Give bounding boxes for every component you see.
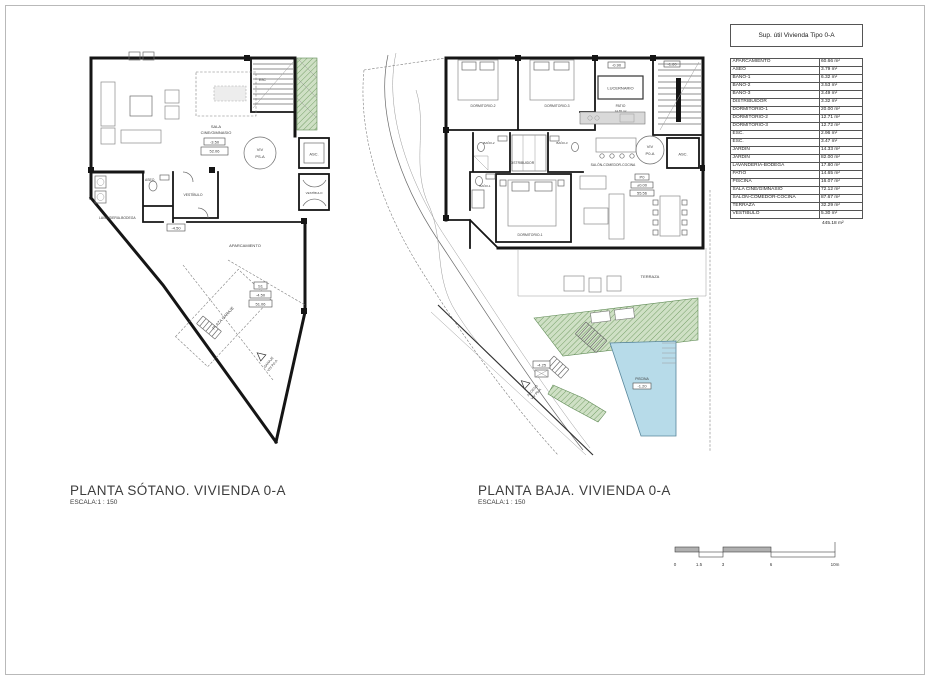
room-area: 16.07 m² [819, 179, 863, 186]
table-row: DORMITORIO-312.72 m² [730, 123, 863, 131]
room-label: PATIO [616, 104, 626, 108]
skylight-label: LUCERNARIO [607, 86, 633, 91]
bedroom-3: DORMITORIO-3 [530, 60, 574, 108]
sotano-walls [88, 52, 307, 442]
table-row: ASEO3.79 m² [730, 67, 863, 75]
scale-tick: 0 [674, 562, 677, 567]
table-row: BAÑO-33.49 m² [730, 91, 863, 99]
level-tag: -4.50 [256, 292, 266, 297]
scale-tick: 10m [831, 562, 840, 567]
level-tag: -4.25 [537, 362, 547, 367]
room-name: DORMITORIO-2 [731, 115, 819, 122]
baja-elevator: ASC. [667, 138, 699, 168]
bathroom-2: BAÑO-2 [474, 136, 507, 170]
room-name: ESC. [731, 139, 819, 146]
level-tag: -0.90 [612, 63, 622, 68]
room-label: SALA [211, 124, 222, 129]
bathroom-3: BAÑO-3 [550, 136, 579, 152]
room-name: PATIO [731, 171, 819, 178]
level-tag: -3.50 [210, 139, 220, 144]
table-row: DORMITORIO-120.00 m² [730, 107, 863, 115]
baja-title: PLANTA BAJA. VIVIENDA 0-A [478, 483, 671, 498]
area-total: 445.18 m² [730, 221, 863, 226]
table-row: DORMITORIO-212.71 m² [730, 115, 863, 123]
scale-bar-graphic [675, 542, 835, 557]
room-name: ASEO [731, 67, 819, 74]
room-area: 3.79 m² [819, 67, 863, 74]
table-row: VESTÍBULO5.30 m² [730, 211, 863, 219]
room-area: 3.49 m² [819, 91, 863, 98]
room-area: 60.66 m² [819, 59, 863, 66]
bedroom-2: DORMITORIO-2 [458, 60, 498, 108]
garage-access-marker: GARAJE VIV P0-A [253, 347, 279, 372]
table-row: TERRAZA32.29 m² [730, 203, 863, 211]
elevation-tag: 52.06 [209, 149, 220, 154]
kitchen [580, 112, 645, 158]
vestibulo-room: VESTÍBULO [183, 172, 208, 218]
aseo-room: ASEO [145, 175, 169, 191]
table-row: BAÑO-16.32 m² [730, 75, 863, 83]
table-row: LAVANDERIA-BODEGA17.80 m² [730, 163, 863, 171]
lucernario-patio: LUCERNARIO PATIO 14.65 m² -0.90 -1.60 [598, 61, 680, 113]
terrace: TERRAZA [518, 248, 706, 296]
table-row: JARDÍN82.00 m² [730, 155, 863, 163]
room-label: CINE/GIMNASIO [201, 130, 232, 135]
wardrobe-block [512, 135, 546, 171]
room-label: VESTÍBULO [306, 191, 324, 195]
room-area: 82.00 m² [819, 155, 863, 162]
room-label: BAÑO-3 [556, 140, 568, 145]
room-area: 3.47 m² [819, 139, 863, 146]
unit-label: VIV [647, 144, 654, 149]
table-row: ESC.3.47 m² [730, 139, 863, 147]
table-row: ESC.2.96 m² [730, 131, 863, 139]
room-area: 32.29 m² [819, 203, 863, 210]
scale-bar: 0 1.5 3 6 10m [670, 540, 845, 572]
sotano-core-vestibulo: VESTÍBULO [299, 174, 329, 210]
plan-baja: DORMITORIO-2 DORMITORIO-3 LUCERNARIO PAT… [358, 50, 730, 460]
room-area: 72.12 m² [819, 187, 863, 194]
room-name: SALON-COMEDOR-COCINA [731, 195, 819, 202]
table-row: JARDÍN14.33 m² [730, 147, 863, 155]
room-label: LAVANDERIA-BODEGA [99, 216, 136, 220]
room-area: 3.32 m² [819, 99, 863, 106]
sotano-elevator: ASC. [299, 138, 329, 168]
level-tag: -4.50 [171, 225, 181, 230]
room-name: ESC. [731, 131, 819, 138]
room-name: PISCINA [731, 179, 819, 186]
room-area: 14.33 m² [819, 147, 863, 154]
room-label: DORMITORIO-1 [518, 233, 543, 237]
room-label: BAÑO-2 [483, 140, 495, 145]
pool: PISCINA -1.20 [610, 341, 676, 436]
table-row: BAÑO-23.53 m² [730, 83, 863, 91]
sotano-unit-badge: VIV PS-A [244, 137, 276, 169]
room-name: VESTÍBULO [731, 211, 819, 218]
elevator-label: ASC. [678, 152, 687, 157]
stair-label: ESC [259, 78, 267, 82]
room-name: SALA CINE/GIMNASIO [731, 187, 819, 194]
elevator-label: ASC. [309, 152, 318, 157]
room-label: SALÓN-COMEDOR-COCINA [591, 162, 636, 167]
sala-cine-gimnasio: SALA CINE/GIMNASIO -3.50 52.06 [201, 124, 232, 155]
room-label: TERRAZA [641, 274, 660, 279]
elevation-tag: 55.56 [637, 191, 648, 196]
room-name: BAÑO-1 [731, 75, 819, 82]
sotano-title: PLANTA SÓTANO. VIVIENDA 0-A [70, 483, 286, 498]
room-name: JARDÍN [731, 147, 819, 154]
baja-unit-badge: VIV P0-A [636, 136, 664, 164]
room-name: BAÑO-2 [731, 83, 819, 90]
pool-label: PISCINA [635, 377, 649, 381]
room-area: 12.72 m² [819, 123, 863, 130]
unit-label: PS-A [255, 154, 265, 159]
area-table: Sup. útil Vivienda Tipo 0-A APARCAMIENTO… [730, 24, 863, 226]
room-area: 3.53 m² [819, 83, 863, 90]
table-row: SALON-COMEDOR-COCINA87.67 m² [730, 195, 863, 203]
lavanderia-room: LAVANDERIA-BODEGA [95, 176, 136, 220]
baja-scale: ESCALA:1 : 150 [478, 499, 525, 506]
level-tag: ±0.00 [637, 183, 648, 188]
level-tag: P0 [640, 175, 646, 180]
room-label: BAÑO-1 [479, 183, 491, 188]
plan-sotano: ESC SALA CINE/GIMNASIO -3.50 52.06 VIV P… [83, 50, 335, 458]
table-row: DISTRIBUIDOR3.32 m² [730, 99, 863, 107]
room-label: DISTRIBUIDOR [510, 161, 535, 165]
bathroom-1: BAÑO-1 [472, 174, 495, 208]
room-name: APARCAMIENTO [731, 59, 819, 66]
room-area: 6.32 m² [819, 75, 863, 82]
bedroom-1: DORMITORIO-1 [500, 180, 564, 237]
room-area: 14.65 m² [819, 171, 863, 178]
room-label: ASEO [145, 178, 155, 182]
room-area: 12.71 m² [819, 115, 863, 122]
room-label: DORMITORIO-2 [471, 104, 496, 108]
scale-tick: 3 [722, 562, 725, 567]
room-name: BAÑO-3 [731, 91, 819, 98]
table-row: APARCAMIENTO60.66 m² [730, 59, 863, 67]
scale-bar-labels: 0 1.5 3 6 10m [674, 562, 840, 567]
unit-label: P0-A [646, 151, 655, 156]
scale-tick: 1.5 [696, 562, 703, 567]
room-label: DORMITORIO-3 [545, 104, 570, 108]
room-name: DORMITORIO-3 [731, 123, 819, 130]
area-table-body: APARCAMIENTO60.66 m² ASEO3.79 m² BAÑO-16… [730, 58, 863, 219]
level-boxes-p0: P0 ±0.00 55.56 [630, 174, 654, 196]
level-tag: S1 [258, 283, 264, 288]
sotano-scale: ESCALA:1 : 150 [70, 499, 117, 506]
room-label: APARCAMIENTO [229, 243, 261, 248]
room-area: 2.96 m² [819, 131, 863, 138]
room-name: LAVANDERIA-BODEGA [731, 163, 819, 170]
sotano-furniture [101, 72, 256, 144]
entry-access-marker: ACCESO VIV P0-A [516, 375, 542, 401]
unit-label: VIV [257, 147, 264, 152]
table-row: PISCINA16.07 m² [730, 179, 863, 187]
room-area: 87.67 m² [819, 195, 863, 202]
room-area: 17.80 m² [819, 163, 863, 170]
room-area: 20.00 m² [819, 107, 863, 114]
table-row: PATIO14.65 m² [730, 171, 863, 179]
sotano-stairs: ESC [253, 62, 293, 108]
drawing-sheet: ESC SALA CINE/GIMNASIO -3.50 52.06 VIV P… [0, 0, 930, 680]
room-label: VESTÍBULO [183, 193, 202, 197]
scale-tick: 6 [770, 562, 773, 567]
table-row: SALA CINE/GIMNASIO72.12 m² [730, 187, 863, 195]
room-area: 5.30 m² [819, 211, 863, 218]
level-tag: -1.20 [637, 384, 647, 389]
room-name: DORMITORIO-1 [731, 107, 819, 114]
area-table-title: Sup. útil Vivienda Tipo 0-A [730, 24, 863, 47]
sotano-vegetation [297, 58, 317, 130]
elevation-tag: 51.06 [255, 301, 266, 306]
room-name: DISTRIBUIDOR [731, 99, 819, 106]
garage-area: APARCAMIENTO PLAZA GARAJE -4.50 S1 -4.50… [167, 224, 305, 380]
room-name: JARDÍN [731, 155, 819, 162]
baja-stairs [658, 62, 701, 130]
room-name: TERRAZA [731, 203, 819, 210]
